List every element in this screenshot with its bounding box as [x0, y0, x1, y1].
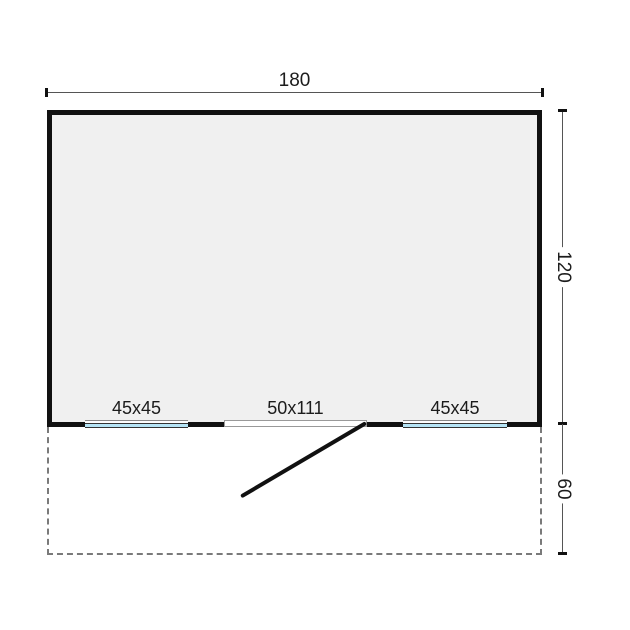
right-window — [403, 420, 507, 428]
right-window-label: 45x45 — [403, 399, 507, 418]
dimension-tick — [558, 552, 567, 555]
left-window — [85, 420, 188, 428]
house-outline — [47, 110, 542, 427]
door-label: 50x111 — [224, 399, 367, 418]
dimension-tick — [541, 88, 544, 97]
veranda-dashed-outline — [47, 427, 542, 555]
floorplan-diagram: 180 120 60 45x45 50x111 45x45 — [0, 0, 630, 630]
dimension-tick — [45, 88, 48, 97]
width-dimension-line — [47, 92, 542, 93]
left-window-label: 45x45 — [85, 399, 188, 418]
height-dimension-label: 120 — [553, 247, 573, 287]
door-opening — [224, 420, 367, 427]
dimension-tick — [558, 109, 567, 112]
veranda-depth-dimension-label: 60 — [553, 474, 573, 503]
width-dimension-label: 180 — [47, 71, 542, 91]
